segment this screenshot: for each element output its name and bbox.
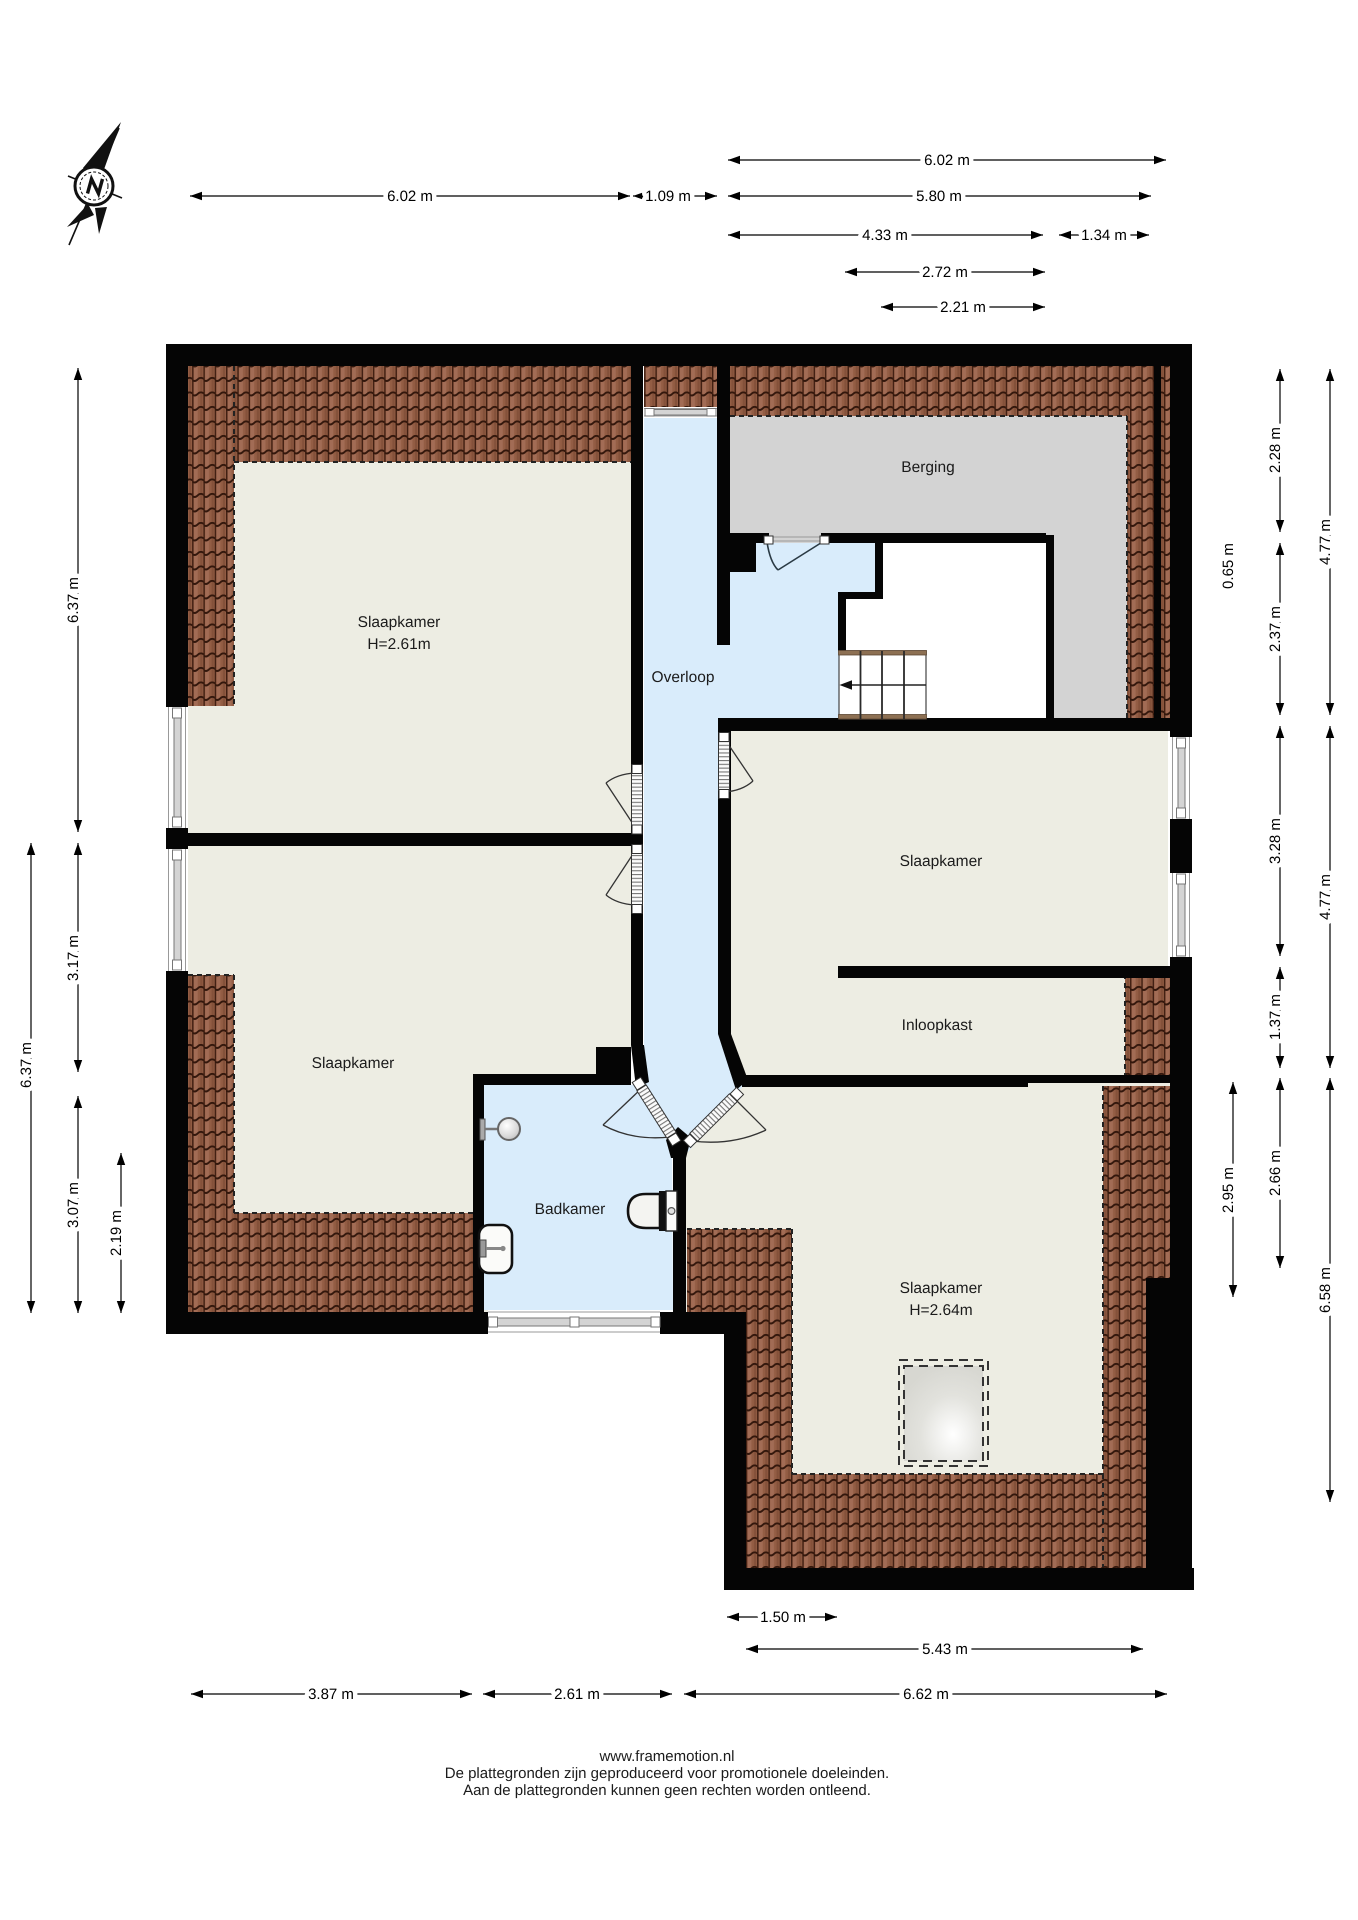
svg-text:1.37 m: 1.37 m — [1267, 994, 1284, 1040]
svg-text:6.58 m: 6.58 m — [1317, 1267, 1334, 1313]
svg-text:2.21 m: 2.21 m — [940, 299, 986, 316]
svg-text:4.77 m: 4.77 m — [1317, 519, 1334, 565]
svg-text:5.80 m: 5.80 m — [916, 188, 962, 205]
svg-text:6.37 m: 6.37 m — [18, 1042, 35, 1088]
svg-text:2.19 m: 2.19 m — [108, 1210, 125, 1256]
svg-text:2.37 m: 2.37 m — [1267, 606, 1284, 652]
svg-text:4.33 m: 4.33 m — [862, 227, 908, 244]
svg-text:H=2.61m: H=2.61m — [367, 636, 430, 653]
svg-text:Slaapkamer: Slaapkamer — [358, 614, 441, 631]
svg-text:Inloopkast: Inloopkast — [902, 1017, 973, 1034]
svg-text:6.02 m: 6.02 m — [387, 188, 433, 205]
svg-text:Aan de plattegronden kunnen ge: Aan de plattegronden kunnen geen rechten… — [463, 1782, 871, 1799]
svg-text:3.28 m: 3.28 m — [1267, 818, 1284, 864]
svg-text:6.62 m: 6.62 m — [903, 1686, 949, 1703]
svg-text:2.66 m: 2.66 m — [1267, 1150, 1284, 1196]
svg-text:Badkamer: Badkamer — [535, 1201, 606, 1218]
svg-text:3.07 m: 3.07 m — [65, 1182, 82, 1228]
svg-text:Slaapkamer: Slaapkamer — [900, 853, 983, 870]
svg-text:De plattegronden zijn geproduc: De plattegronden zijn geproduceerd voor … — [445, 1765, 889, 1782]
svg-text:2.72 m: 2.72 m — [922, 264, 968, 281]
svg-text:4.77 m: 4.77 m — [1317, 874, 1334, 920]
svg-text:5.43 m: 5.43 m — [922, 1641, 968, 1658]
svg-text:6.02 m: 6.02 m — [924, 152, 970, 169]
svg-text:0.65 m: 0.65 m — [1220, 543, 1237, 589]
svg-text:3.17 m: 3.17 m — [65, 935, 82, 981]
svg-text:Berging: Berging — [901, 459, 954, 476]
svg-text:1.50 m: 1.50 m — [760, 1609, 806, 1626]
svg-text:2.28 m: 2.28 m — [1267, 427, 1284, 473]
svg-text:H=2.64m: H=2.64m — [909, 1302, 972, 1319]
svg-text:2.61 m: 2.61 m — [554, 1686, 600, 1703]
svg-text:Overloop: Overloop — [652, 669, 715, 686]
svg-text:Slaapkamer: Slaapkamer — [312, 1055, 395, 1072]
svg-text:3.87 m: 3.87 m — [308, 1686, 354, 1703]
svg-text:1.34 m: 1.34 m — [1081, 227, 1127, 244]
svg-text:2.95 m: 2.95 m — [1220, 1167, 1237, 1213]
svg-text:Slaapkamer: Slaapkamer — [900, 1280, 983, 1297]
svg-text:6.37 m: 6.37 m — [65, 577, 82, 623]
svg-text:1.09 m: 1.09 m — [645, 188, 691, 205]
svg-text:www.framemotion.nl: www.framemotion.nl — [598, 1748, 734, 1765]
